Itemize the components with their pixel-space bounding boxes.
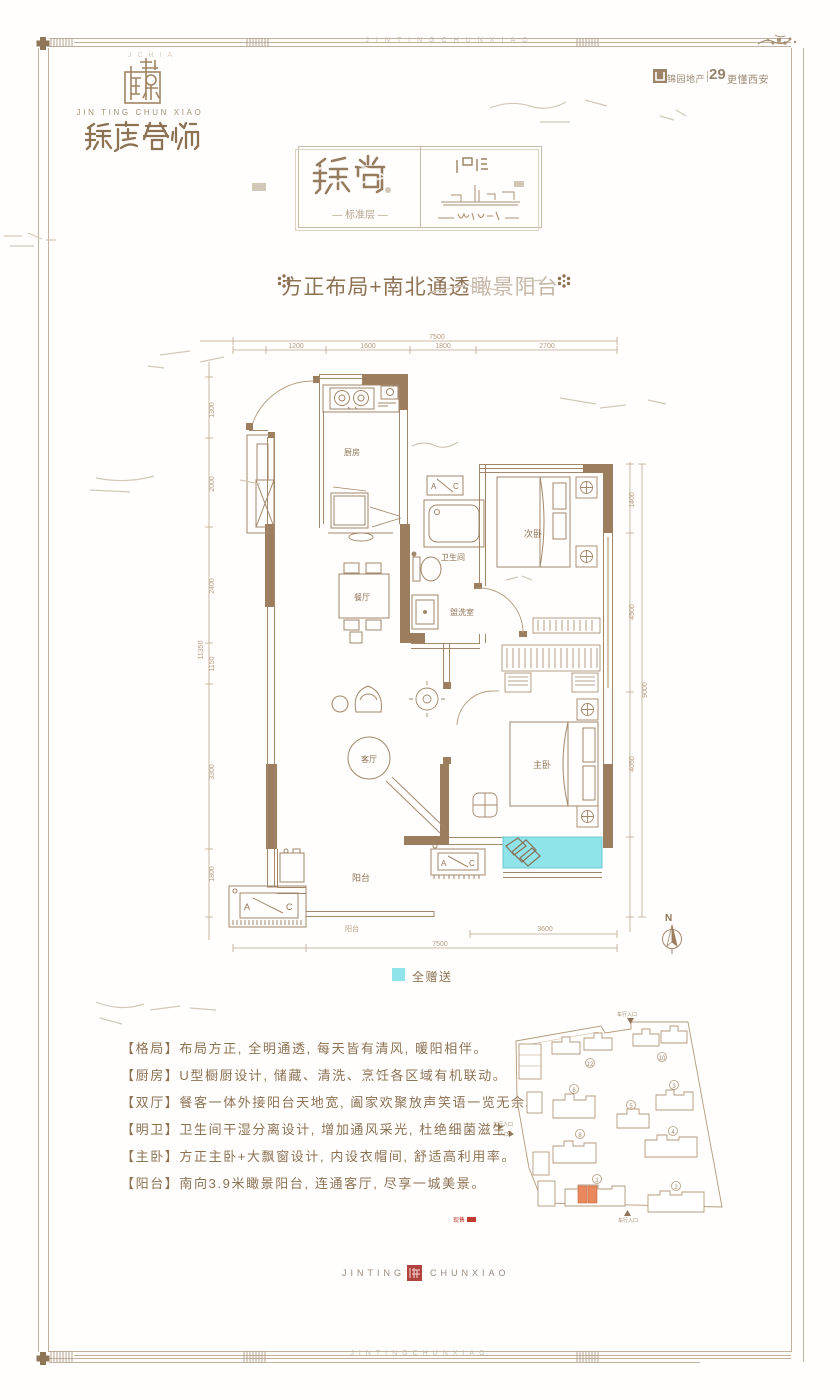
svg-text:人口: 人口	[499, 1132, 509, 1138]
svg-text:盥洗室: 盥洗室	[450, 607, 474, 617]
svg-text:阳台: 阳台	[345, 924, 359, 933]
svg-text:9000: 9000	[642, 682, 649, 698]
svg-text:主卧: 主卧	[533, 759, 551, 770]
svg-text:2400: 2400	[209, 578, 216, 594]
svg-text:1600: 1600	[360, 343, 376, 350]
svg-text:1800: 1800	[435, 343, 451, 350]
svg-text:7500: 7500	[429, 334, 445, 341]
svg-text:4050: 4050	[629, 756, 636, 772]
svg-text:C: C	[286, 902, 293, 912]
svg-text:A: A	[431, 482, 437, 491]
svg-text:厨房: 厨房	[344, 447, 360, 457]
svg-text:A: A	[244, 902, 250, 912]
svg-text:1300: 1300	[209, 402, 216, 418]
svg-text:卫生间: 卫生间	[441, 552, 465, 562]
svg-text:车行入口: 车行入口	[618, 1217, 638, 1224]
svg-text:A: A	[441, 859, 447, 868]
svg-text:车行入口: 车行入口	[617, 1011, 637, 1018]
svg-text:7500: 7500	[432, 941, 448, 948]
svg-text:1800: 1800	[209, 866, 216, 882]
svg-text:1150: 1150	[209, 656, 216, 671]
svg-text:1400: 1400	[629, 492, 636, 508]
svg-text:阳台: 阳台	[352, 872, 370, 883]
svg-text:次卧: 次卧	[524, 528, 542, 539]
svg-text:2700: 2700	[539, 343, 555, 350]
svg-text:2000: 2000	[209, 476, 216, 492]
svg-text:C: C	[469, 859, 475, 868]
svg-text:3600: 3600	[537, 926, 553, 933]
svg-text:车行入口: 车行入口	[493, 1121, 513, 1128]
svg-text:4500: 4500	[629, 604, 636, 620]
svg-text:11350: 11350	[198, 640, 205, 659]
svg-text:10: 10	[659, 1056, 666, 1062]
svg-text:客厅: 客厅	[361, 754, 377, 764]
svg-text:C: C	[453, 482, 459, 491]
svg-text:12: 12	[587, 1062, 594, 1068]
svg-text:N: N	[665, 913, 672, 924]
svg-text:餐厅: 餐厅	[354, 593, 370, 602]
svg-text:1200: 1200	[288, 343, 304, 350]
svg-text:3300: 3300	[209, 764, 216, 780]
